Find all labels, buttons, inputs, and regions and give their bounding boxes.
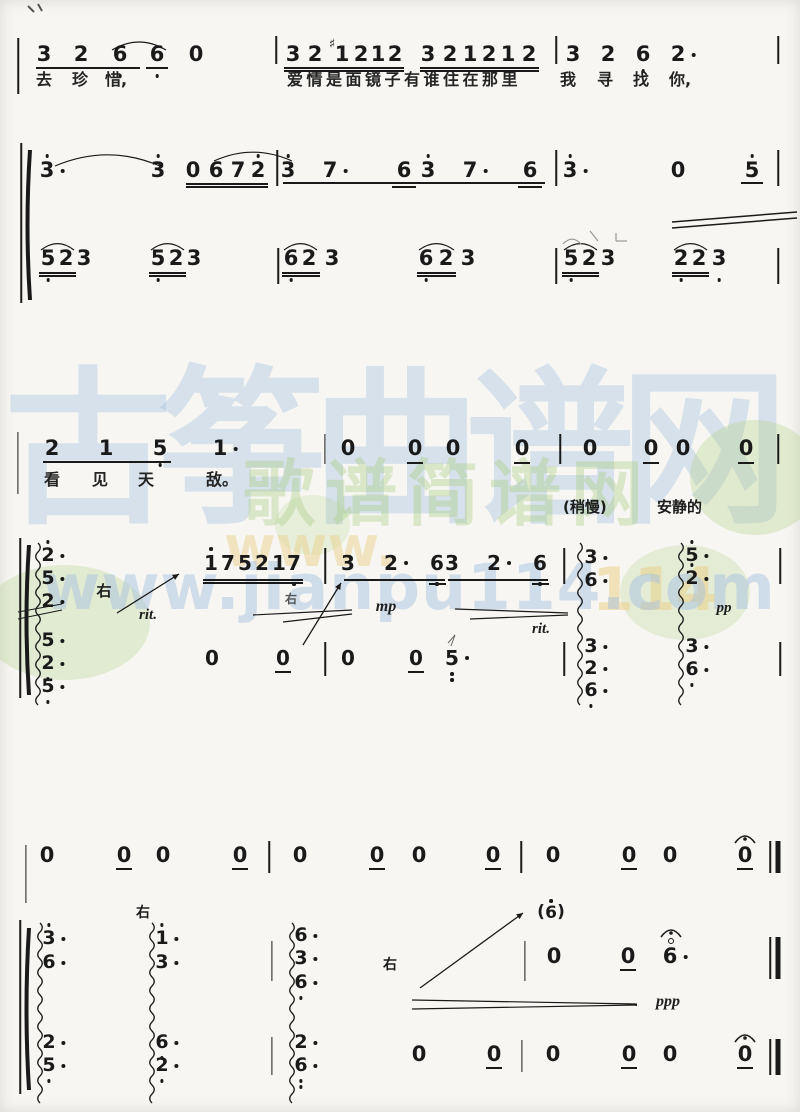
octave-dot-below (155, 74, 159, 78)
octave-dot-above (45, 154, 49, 158)
note-digit: 2 (487, 553, 501, 573)
octave-dot-above (690, 563, 694, 567)
tie-slur (563, 239, 581, 244)
hand-guide-arrowhead (335, 583, 341, 590)
note-digit: 5 (41, 248, 56, 269)
note-digit: 2 (255, 553, 269, 573)
pen-mark (590, 231, 598, 241)
barline (520, 841, 522, 873)
augmentation-dot (705, 645, 709, 649)
note-digit: 5 (445, 648, 459, 668)
lyric-text: 你, (669, 72, 691, 88)
rhythm-underline (39, 275, 76, 277)
hairpin-line (412, 1005, 637, 1009)
rhythm-underline (737, 868, 753, 870)
rhythm-underline (149, 275, 186, 277)
note-digit: 7 (323, 160, 338, 181)
rest-zero: 0 (738, 1044, 753, 1065)
rhythm-underline (203, 579, 303, 581)
note-digit: 7 (463, 160, 478, 181)
augmentation-dot (705, 554, 709, 558)
augmentation-dot (62, 1041, 66, 1045)
rhythm-underline (621, 868, 637, 870)
right-hand-label: 右 (96, 584, 111, 599)
barline (521, 1040, 522, 1072)
barline (324, 642, 326, 676)
fermata (661, 930, 681, 937)
rest-zero: 0 (547, 946, 562, 967)
augmentation-dot (314, 981, 318, 985)
augmentation-dot (61, 577, 65, 581)
augmentation-dot (314, 1041, 318, 1045)
rhythm-underline (186, 183, 268, 185)
rhythm-underline (284, 67, 404, 69)
rest-zero: 0 (409, 648, 423, 668)
tempo-rit: rit. (139, 608, 157, 623)
rhythm-underline (146, 67, 168, 69)
note-digit: 6 (584, 571, 597, 590)
rhythm-underline (737, 1067, 753, 1069)
barline (19, 538, 21, 698)
note-digit: 3 (584, 637, 597, 656)
augmentation-dot (175, 1041, 179, 1045)
note-digit: 2 (74, 44, 89, 65)
rhythm-underline (203, 582, 303, 584)
fermata (735, 836, 755, 843)
scan-smudge (38, 4, 42, 11)
octave-dot-below (717, 278, 721, 282)
augmentation-dot (62, 1064, 66, 1068)
note-digit: 6 (155, 1033, 168, 1052)
rest-zero: 0 (621, 946, 636, 967)
note-digit: 3 (151, 160, 166, 181)
note-digit: 3 (286, 44, 301, 65)
rhythm-underline (417, 272, 456, 274)
augmentation-dot (175, 1064, 179, 1068)
octave-dot-below (46, 278, 50, 282)
watermark-blob (275, 495, 350, 555)
arpeggio-wavy-line (38, 923, 43, 1103)
note-digit: 1 (155, 929, 168, 948)
note-digit: 3 (40, 160, 55, 181)
lyric-text: 见 (92, 472, 108, 488)
note-digit: 3 (421, 160, 436, 181)
augmentation-dot (62, 937, 66, 941)
rest-zero: 0 (40, 845, 55, 866)
octave-dot-below (424, 278, 428, 282)
octave-dot-below (690, 683, 694, 687)
pen-mark (451, 635, 455, 646)
octave-dot-above (568, 154, 572, 158)
barline (777, 248, 779, 284)
hairpin-line (253, 610, 352, 615)
octave-dot-above (426, 154, 430, 158)
fermata (735, 1035, 755, 1042)
note-digit: 1 (501, 44, 516, 65)
barline (769, 937, 771, 979)
note-digit: 2 (41, 592, 54, 611)
barline (271, 1037, 272, 1075)
augmentation-dot (61, 662, 65, 666)
arpeggio-wavy-line (679, 543, 684, 705)
rhythm-underline (518, 186, 542, 188)
note-digit: 5 (41, 677, 54, 696)
system-brace (25, 928, 32, 1090)
lyric-text: 找 (633, 72, 649, 88)
rhythm-underline (621, 1067, 637, 1069)
rhythm-underline (562, 275, 599, 277)
augmentation-dot (314, 1064, 318, 1068)
rest-zero: 0 (205, 648, 219, 668)
note-digit: 3 (461, 248, 476, 269)
note-digit: 2 (294, 1033, 307, 1052)
rhythm-underline (420, 67, 539, 69)
hairpin-line (455, 609, 568, 613)
augmentation-dot (604, 667, 608, 671)
rhythm-underline (620, 969, 636, 971)
note-digit: 2 (582, 248, 597, 269)
note-digit: 2 (692, 248, 707, 269)
augmentation-dot (314, 934, 318, 938)
hairpin-line (470, 615, 568, 619)
rest-zero: 0 (663, 845, 678, 866)
final-barline-thick (776, 1039, 781, 1075)
rhythm-underline (407, 462, 423, 464)
rest-zero: 0 (739, 438, 754, 459)
barline (19, 920, 21, 1094)
rhythm-underline (448, 579, 548, 581)
note-digit: 2 (41, 546, 54, 565)
rest-zero: 0 (663, 1044, 678, 1065)
octave-dot-below (289, 278, 293, 282)
rhythm-underline (116, 868, 132, 870)
rhythm-underline (672, 272, 709, 274)
barline (555, 150, 557, 186)
barline (271, 941, 272, 981)
augmentation-dot (314, 957, 318, 961)
octave-dot-below (46, 700, 50, 704)
barline (777, 150, 779, 186)
note-digit: 6 (419, 248, 434, 269)
octave-dot-below (450, 672, 454, 676)
rhythm-underline (275, 671, 291, 673)
rest-zero: 0 (546, 1044, 561, 1065)
note-digit: 3 (566, 44, 581, 65)
note-digit: 6 (284, 248, 299, 269)
note-digit: 6 (42, 953, 55, 972)
octave-dot-above (549, 899, 553, 903)
barline (779, 548, 781, 584)
octave-dot-below (299, 1079, 303, 1083)
octave-dot-below (450, 678, 454, 682)
note-digit: 6 (523, 160, 538, 181)
augmentation-dot (404, 561, 408, 565)
note-digit: 5 (564, 248, 579, 269)
rest-zero: 0 (546, 845, 561, 866)
rest-zero: 0 (276, 648, 290, 668)
augmentation-dot (683, 955, 687, 959)
arpeggio-wavy-line (36, 543, 41, 705)
augmentation-dot (507, 561, 511, 565)
rhythm-underline (741, 182, 763, 184)
rest-zero: 0 (341, 438, 356, 459)
tempo-rit: rit. (532, 622, 550, 637)
note-digit: 2 (522, 44, 537, 65)
note-digit: 3 (421, 44, 436, 65)
rest-zero: 0 (189, 44, 204, 65)
rest-zero: 0 (233, 845, 248, 866)
rhythm-underline (562, 272, 599, 274)
octave-dot-above (47, 923, 51, 927)
rhythm-underline (429, 583, 446, 585)
note-digit: 2 (354, 44, 369, 65)
note-digit: 2 (388, 44, 403, 65)
barline (25, 845, 26, 903)
lyric-text: 惜, (105, 72, 127, 88)
rhythm-underline (532, 583, 549, 585)
barline (769, 841, 771, 873)
right-hand-label: 右 (136, 906, 150, 920)
note-digit: 3 (294, 949, 307, 968)
rest-zero: 0 (156, 845, 171, 866)
note-digit: 2 (302, 248, 317, 269)
augmentation-dot (604, 579, 608, 583)
note-digit: 3 (685, 637, 698, 656)
watermark-blob (0, 565, 150, 680)
note-digit: 7 (287, 553, 301, 573)
augmentation-dot (60, 169, 64, 173)
augmentation-dot (61, 554, 65, 558)
watermark-green-text: 歌谱简谱网 (243, 458, 653, 530)
augmentation-dot (483, 169, 487, 173)
hairpin-line (283, 614, 352, 622)
barline (563, 548, 565, 584)
system-brace (25, 545, 32, 695)
rhythm-underline (417, 275, 456, 277)
augmentation-dot (61, 639, 65, 643)
octave-dot-below (156, 278, 160, 282)
note-digit: 5 (151, 248, 166, 269)
note-digit: 2 (308, 44, 323, 65)
note-digit: 2 (59, 248, 74, 269)
octave-dot-above (209, 547, 213, 551)
note-digit: 3 (341, 553, 355, 573)
expression-anjingde: 安静的 (657, 500, 702, 515)
note-digit: 3 (37, 44, 52, 65)
pen-mark (18, 604, 62, 612)
note-digit: 6 (294, 1056, 307, 1075)
barline (769, 1039, 771, 1075)
gliss-line (672, 212, 797, 222)
note-digit: 6 (584, 681, 597, 700)
note-digit: 1 (99, 438, 114, 459)
octave-dot-below (299, 1085, 303, 1089)
rest-zero: 0 (622, 1044, 637, 1065)
barline (324, 434, 325, 464)
hand-guide-arrowhead (516, 913, 523, 919)
barline (555, 248, 557, 284)
note-digit: 2 (685, 569, 698, 588)
rest-zero: 0 (408, 438, 423, 459)
hand-guide-arrowhead (172, 574, 179, 580)
rest-zero: 0 (186, 160, 201, 181)
rhythm-underline (514, 462, 530, 464)
rhythm-underline (232, 868, 248, 870)
note-digit: 2 (155, 1056, 168, 1075)
note-digit: 1 (204, 553, 218, 573)
hairpin-line (412, 1000, 637, 1004)
augmentation-dot (604, 645, 608, 649)
note-digit: 6 (113, 44, 128, 65)
tie-slur (55, 155, 160, 166)
rhythm-underline (43, 461, 171, 463)
barline (17, 432, 18, 494)
note-digit: 5 (745, 160, 760, 181)
augmentation-dot (705, 577, 709, 581)
fermata-dot (743, 1036, 747, 1040)
note-digit: 5 (41, 569, 54, 588)
note-digit: 6 (209, 160, 224, 181)
note-digit: 2 (41, 654, 54, 673)
augmentation-dot (175, 961, 179, 965)
augmentation-dot (233, 447, 237, 451)
note-digit: 2 (584, 659, 597, 678)
note-digit: 6 (533, 553, 547, 573)
note-digit: 6 (397, 160, 412, 181)
lyric-text: 我 (560, 72, 576, 88)
note-digit: 2 (384, 553, 398, 573)
note-digit: 6 (150, 44, 165, 65)
rest-zero: 0 (412, 1044, 427, 1065)
octave-dot-above (46, 540, 50, 544)
lyric-text: 珍 (72, 72, 88, 88)
augmentation-dot (583, 169, 587, 173)
rhythm-underline (39, 272, 76, 274)
rhythm-underline (149, 272, 186, 274)
rest-zero: 0 (738, 845, 753, 866)
lyric-text: 天 (138, 472, 154, 488)
note-digit: 5 (238, 553, 252, 573)
note-digit: 2 (251, 160, 266, 181)
augmentation-dot (61, 600, 65, 604)
note-digit: 3 (77, 248, 92, 269)
octave-dot-above (286, 154, 290, 158)
note-digit: 3 (712, 248, 727, 269)
note-digit: 2 (42, 1033, 55, 1052)
note-digit: 5 (42, 1056, 55, 1075)
pen-mark (18, 610, 62, 619)
octave-dot-below (589, 704, 593, 708)
gliss-line (672, 218, 797, 228)
right-hand-label: 右 (285, 593, 297, 605)
rhythm-underline (282, 272, 320, 274)
note-digit: 1 (335, 44, 350, 65)
barline (324, 548, 326, 584)
octave-dot-above (156, 154, 160, 158)
note-digit: 7 (231, 160, 246, 181)
rhythm-underline (282, 275, 320, 277)
note-digit: 6 (430, 553, 444, 573)
rhythm-underline (369, 868, 385, 870)
lyric-text: 去 (36, 72, 52, 88)
note-digit: 2 (169, 248, 184, 269)
rest-zero: 0 (412, 845, 427, 866)
note-digit: 3 (445, 553, 459, 573)
hand-guide-arrow (420, 913, 523, 988)
note-digit: 6 (294, 926, 307, 945)
note-digit: 5 (153, 438, 168, 459)
octave-dot-below (47, 1079, 51, 1083)
rhythm-underline (344, 579, 445, 581)
right-hand-label: 右 (383, 958, 397, 972)
note-digit: 6 (636, 44, 651, 65)
augmentation-dot (604, 556, 608, 560)
dynamic-ppp: ppp (656, 994, 680, 1010)
rest-zero: 0 (671, 160, 686, 181)
augmentation-dot (465, 656, 469, 660)
rhythm-underline (392, 186, 416, 188)
note-digit: 5 (41, 631, 54, 650)
arpeggio-wavy-line (578, 543, 583, 705)
barline (20, 143, 22, 303)
rhythm-underline (408, 671, 424, 673)
note-digit: 2 (439, 248, 454, 269)
note-digit: 2 (482, 44, 497, 65)
barline (524, 941, 525, 981)
fermata-dot (669, 931, 673, 935)
augmentation-dot (61, 685, 65, 689)
note-digit: 3 (42, 929, 55, 948)
note-digit: 7 (221, 553, 235, 573)
rest-zero: 0 (341, 648, 355, 668)
note-digit: 2 (671, 44, 686, 65)
augmentation-dot (604, 689, 608, 693)
barline (563, 642, 565, 676)
paren-close: ) (557, 904, 565, 921)
note-digit: 3 (281, 160, 296, 181)
barline (559, 434, 561, 464)
rest-zero: 0 (644, 438, 659, 459)
octave-dot-below (160, 1079, 164, 1083)
barline (275, 36, 277, 64)
octave-dot-above (750, 154, 754, 158)
note-digit: 1 (272, 553, 286, 573)
octave-dot-below (569, 278, 573, 282)
barline (17, 38, 19, 94)
barline (276, 150, 278, 186)
note-digit: 6 (294, 973, 307, 992)
lyric-text: 寻 (597, 72, 613, 88)
lyric-text: 爱情是面镜子有谁住在那里 (287, 72, 521, 88)
note-digit: 2 (443, 44, 458, 65)
note-digit: 6 (663, 946, 678, 967)
octave-dot-below (299, 996, 303, 1000)
rest-zero: 0 (487, 1044, 502, 1065)
rest-zero: 0 (486, 845, 501, 866)
scan-smudge (28, 6, 34, 12)
final-barline-thick (776, 937, 781, 979)
note-digit: 2 (45, 438, 60, 459)
rhythm-underline (486, 1067, 502, 1069)
augmentation-dot (62, 961, 66, 965)
rest-zero: 0 (293, 845, 308, 866)
augmentation-dot (343, 169, 347, 173)
sheet-music-page: 古筝曲谱网 歌谱简谱网 www. 114 www.jianpu114.com 3… (0, 0, 800, 1112)
note-digit: 3 (584, 548, 597, 567)
harmonic-circle (669, 939, 674, 944)
rhythm-underline (643, 462, 659, 464)
dynamic-mp: mp (376, 599, 396, 615)
